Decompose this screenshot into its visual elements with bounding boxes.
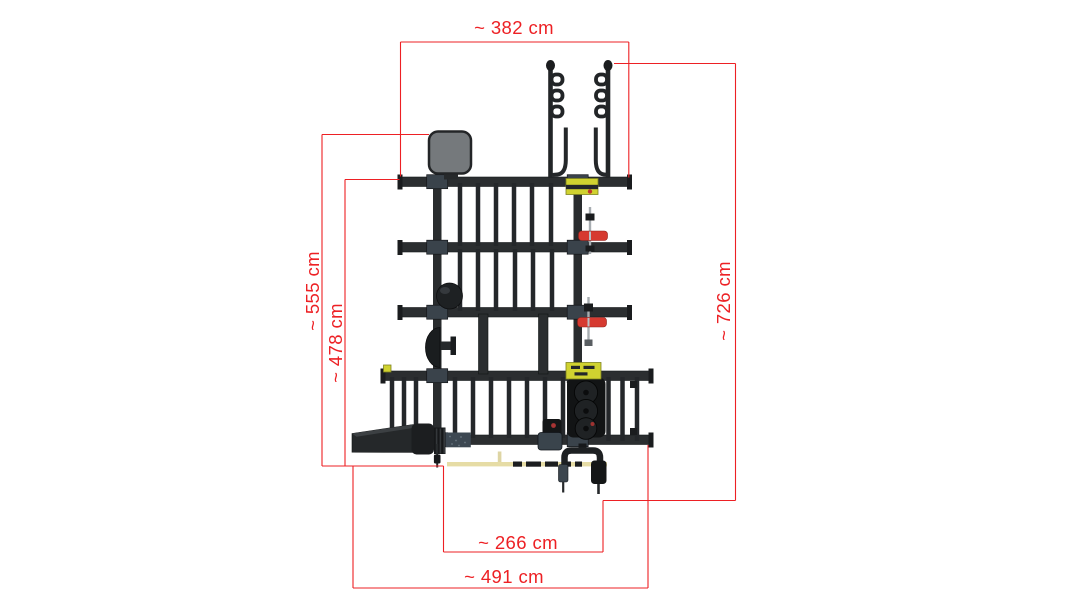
dim-label-left-outer-height: ~ 555 cm — [302, 251, 323, 331]
left-hook-loop — [552, 91, 563, 101]
left-hook-loop — [552, 75, 563, 85]
ball-highlight — [440, 287, 450, 294]
red-mark — [551, 423, 556, 428]
left-hook-u-leg — [553, 128, 566, 176]
dim-label-bottom-inner-width: ~ 266 cm — [478, 532, 558, 553]
top-hook-columns — [546, 60, 613, 178]
dimension-annotations: ~ 382 cm ~ 555 cm ~ 478 cm ~ 726 cm ~ 26… — [302, 17, 736, 588]
rung-clip-bottom — [630, 428, 637, 435]
yellow-plate-rail4 — [566, 363, 601, 380]
barbell-collar — [584, 304, 593, 312]
seat-pad-cushion — [429, 132, 471, 174]
rail-4 — [383, 371, 652, 381]
floor-bar — [447, 462, 607, 467]
mid-bar-right — [539, 314, 549, 374]
dim-label-bottom-outer-width: ~ 491 cm — [464, 566, 544, 587]
ladder-rungs-row2 — [460, 249, 552, 311]
hook-leg-right — [591, 461, 607, 485]
medicine-ball — [437, 283, 463, 309]
seat-pad — [429, 132, 471, 180]
plate-hub — [583, 390, 589, 396]
beam-end-block — [412, 424, 435, 455]
hook-leg-left — [559, 465, 569, 483]
disc-tee — [451, 337, 457, 356]
right-hook-loop — [596, 91, 607, 101]
dim-label-top-width: ~ 382 cm — [474, 17, 554, 38]
dim-label-right-height: ~ 726 cm — [713, 261, 734, 341]
pin-head — [434, 455, 441, 464]
pale-stem — [498, 452, 502, 464]
plate-hub — [583, 426, 589, 432]
red-handle — [579, 231, 608, 241]
rack-dimension-drawing: ~ 382 cm ~ 555 cm ~ 478 cm ~ 726 cm ~ 26… — [0, 0, 1080, 607]
drawing-canvas: ~ 382 cm ~ 555 cm ~ 478 cm ~ 726 cm ~ 26… — [0, 0, 1080, 607]
barbell-tip — [585, 340, 593, 347]
left-hook-loop — [552, 107, 563, 117]
dim-label-left-inner-height: ~ 478 cm — [325, 303, 346, 383]
right-hook-knob — [604, 60, 613, 71]
plate-hub — [583, 408, 589, 414]
yellow-tip-rail4-left — [384, 365, 392, 372]
barbell-collar — [586, 214, 595, 221]
rung-clip-top — [630, 381, 637, 388]
rack-frame — [381, 175, 654, 448]
ladder-rungs-row1 — [460, 183, 551, 246]
mid-bar-left — [479, 314, 489, 374]
barbell-collar — [586, 246, 595, 252]
half-disc — [426, 328, 441, 368]
ladder-rungs-row4-left — [392, 377, 416, 431]
left-hook-knob — [546, 60, 555, 71]
right-hook-loop — [596, 75, 607, 85]
yellow-collar-top — [566, 179, 598, 195]
red-mark — [591, 422, 595, 426]
right-hook-column — [596, 60, 613, 178]
weight-plate-stack — [567, 378, 606, 440]
right-hook-loop — [596, 107, 607, 117]
left-hook-column — [546, 60, 566, 178]
red-pin-dot — [588, 189, 592, 193]
red-handle — [578, 318, 607, 328]
hook-mount-base — [538, 433, 562, 451]
